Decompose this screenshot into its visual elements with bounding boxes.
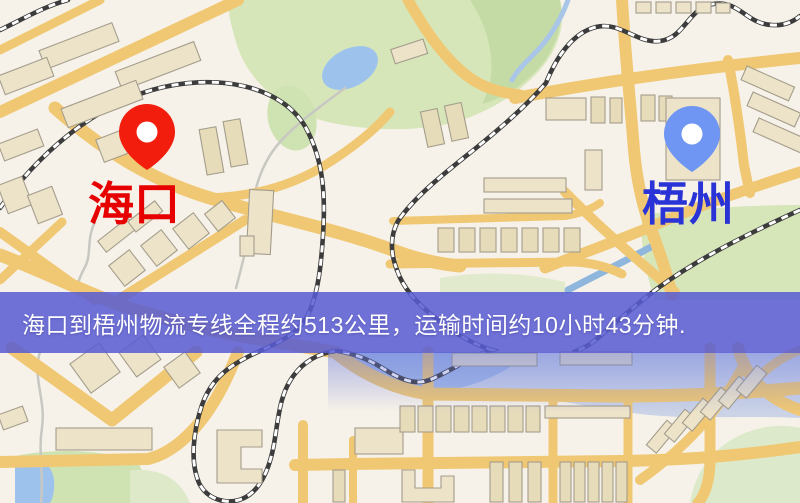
- destination-city-label: 梧州: [642, 177, 734, 231]
- destination-pin-hole: [682, 124, 703, 145]
- origin-pin-hole: [137, 122, 158, 143]
- map-screenshot: 海口 梧州 海口到梧州物流专线全程约513公里，运输时间约10小时43分钟.: [0, 0, 800, 503]
- route-info-banner: 海口到梧州物流专线全程约513公里，运输时间约10小时43分钟.: [0, 292, 800, 353]
- map-canvas[interactable]: 海口 梧州: [0, 0, 800, 503]
- origin-city-label: 海口: [88, 177, 180, 231]
- route-info-text: 海口到梧州物流专线全程约513公里，运输时间约10小时43分钟.: [22, 306, 686, 340]
